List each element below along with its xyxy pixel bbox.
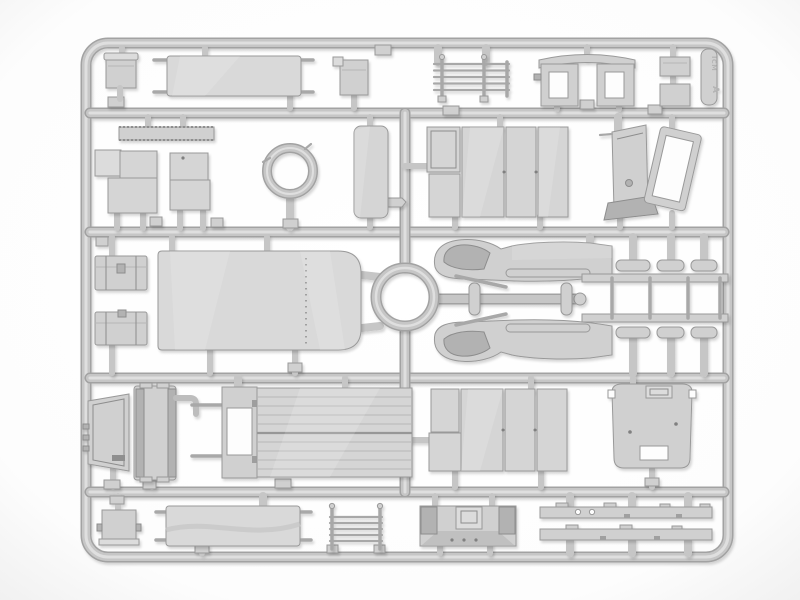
- brand-logo-emboss: ICM: [710, 56, 718, 71]
- part-folded-seat-right: [170, 153, 210, 210]
- sprue-a-image: ICM A: [0, 0, 800, 600]
- sprue-photo: ICM A: [0, 0, 800, 600]
- part-axle-pin-2: [561, 283, 572, 315]
- part-tie-rod-pins-bottom: [616, 327, 717, 338]
- part-cab-roof: [608, 384, 696, 468]
- part-storage-box-bottom: [97, 510, 141, 545]
- part-tie-rod-pins-top: [616, 260, 717, 271]
- part-door-panel-group-upper: [427, 127, 568, 217]
- part-cargo-floor: [257, 388, 412, 477]
- sprue-letter-emboss: A: [710, 86, 720, 93]
- part-stretcher-2: [156, 506, 311, 546]
- part-axle-pin-1: [469, 283, 480, 315]
- sprue-id-tab: ICM A: [701, 49, 720, 105]
- part-door-panel-group-lower: [429, 389, 567, 471]
- part-stretcher-1: [154, 56, 313, 96]
- part-dashboard-bulkhead: [420, 506, 516, 546]
- part-grille-shell: [83, 394, 129, 471]
- part-tall-panel: [354, 126, 388, 218]
- part-chest-2: [95, 310, 147, 345]
- part-canvas-tilt: [158, 251, 361, 350]
- part-tread-strip: [119, 127, 214, 140]
- part-chest-1: [95, 256, 147, 290]
